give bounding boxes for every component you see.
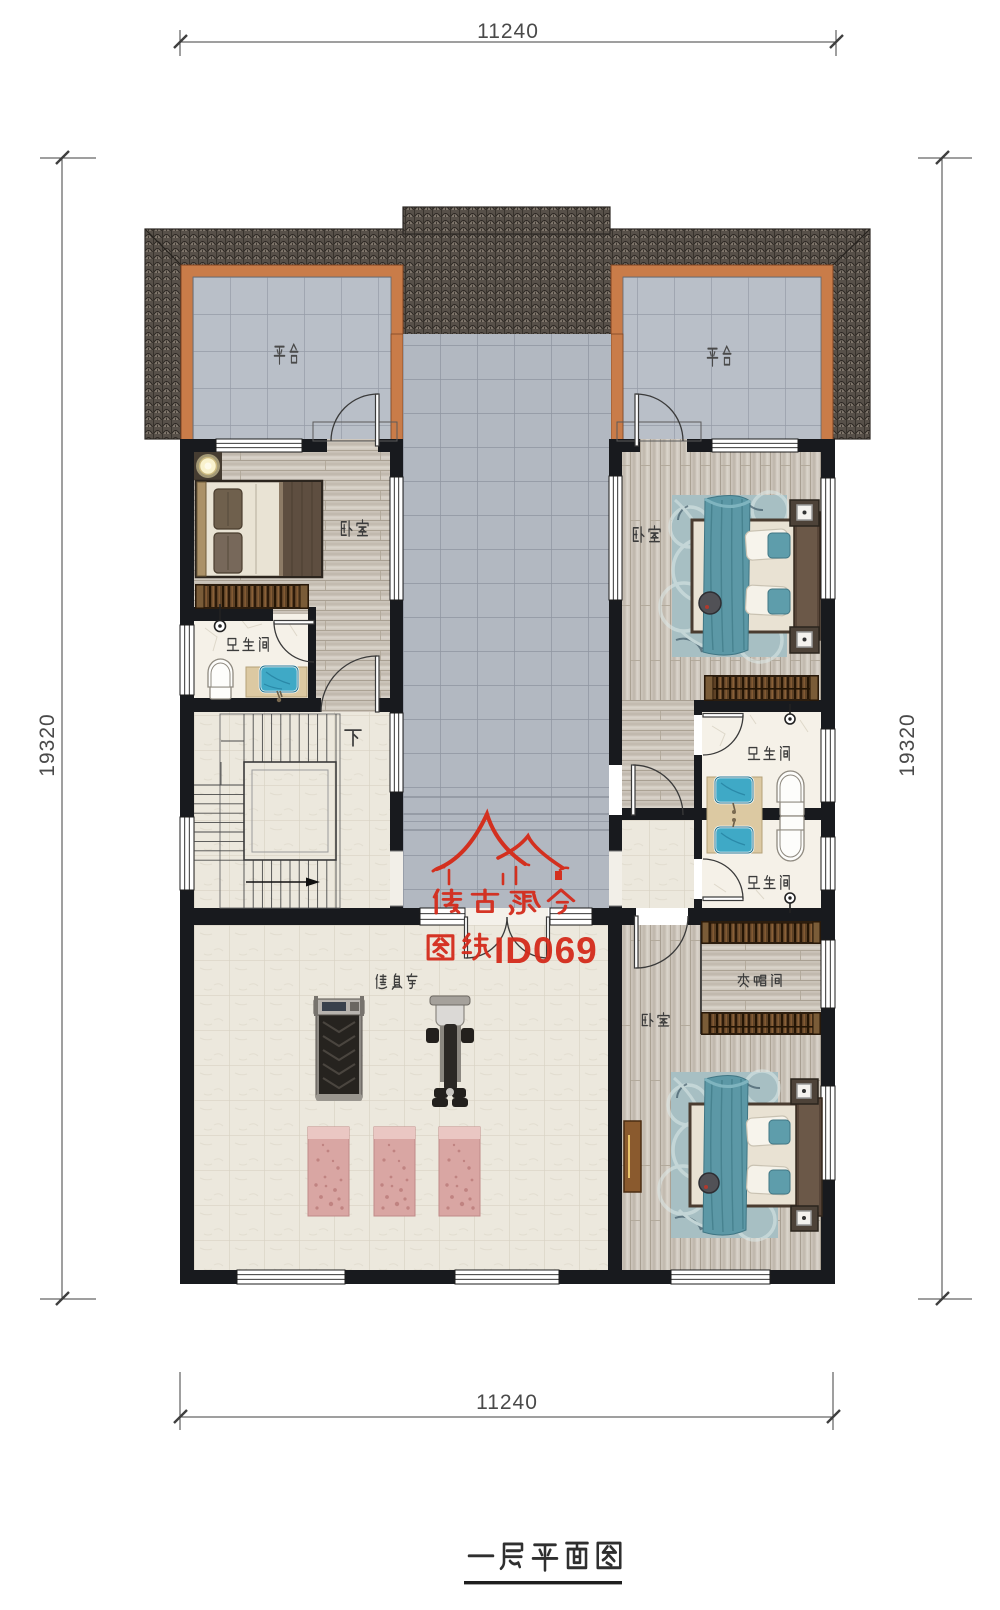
svg-text:11240: 11240 [476,1391,538,1414]
svg-text:19320: 19320 [896,713,919,776]
svg-text:ID069: ID069 [494,930,598,971]
svg-text:11240: 11240 [477,20,539,43]
svg-text:19320: 19320 [36,713,59,776]
